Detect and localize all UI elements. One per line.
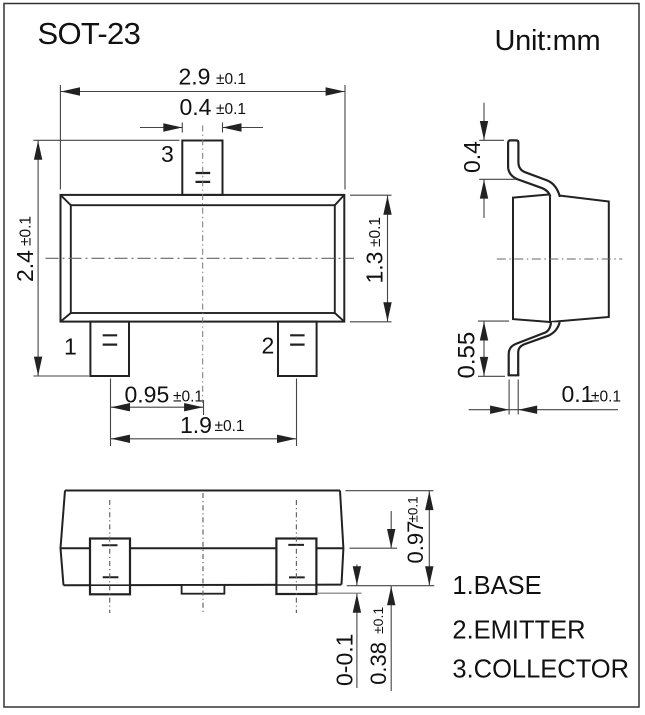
svg-text:±0.1: ±0.1: [17, 216, 34, 246]
svg-text:1.3: 1.3: [362, 252, 388, 284]
svg-text:0.1: 0.1: [562, 381, 594, 407]
svg-text:0.4: 0.4: [459, 141, 485, 173]
svg-text:±0.1: ±0.1: [216, 71, 246, 88]
svg-text:±0.1: ±0.1: [367, 217, 384, 247]
svg-text:0.95: 0.95: [125, 381, 170, 407]
svg-text:3.COLLECTOR: 3.COLLECTOR: [452, 656, 629, 684]
svg-text:Unit:mm: Unit:mm: [495, 25, 601, 57]
svg-text:0.97: 0.97: [403, 521, 428, 564]
svg-text:±0.1: ±0.1: [405, 496, 420, 522]
svg-text:1.BASE: 1.BASE: [452, 572, 541, 600]
svg-text:2.9: 2.9: [179, 64, 211, 90]
svg-text:0.4: 0.4: [180, 94, 212, 120]
svg-text:1: 1: [64, 334, 77, 360]
svg-text:1.9: 1.9: [180, 412, 212, 438]
svg-text:±0.1: ±0.1: [216, 101, 246, 118]
svg-text:±0.1: ±0.1: [591, 389, 621, 406]
svg-text:2: 2: [262, 333, 275, 359]
svg-text:SOT-23: SOT-23: [38, 16, 141, 51]
svg-text:±0.1: ±0.1: [173, 388, 203, 405]
svg-text:2.4: 2.4: [12, 250, 38, 282]
svg-text:0.38: 0.38: [366, 642, 391, 685]
svg-text:±0.1: ±0.1: [215, 418, 245, 435]
svg-text:2.EMITTER: 2.EMITTER: [452, 617, 585, 645]
svg-text:0.55: 0.55: [454, 332, 481, 379]
svg-text:0-0.1: 0-0.1: [332, 634, 358, 686]
svg-text:3: 3: [161, 141, 174, 167]
svg-text:±0.1: ±0.1: [370, 607, 386, 634]
